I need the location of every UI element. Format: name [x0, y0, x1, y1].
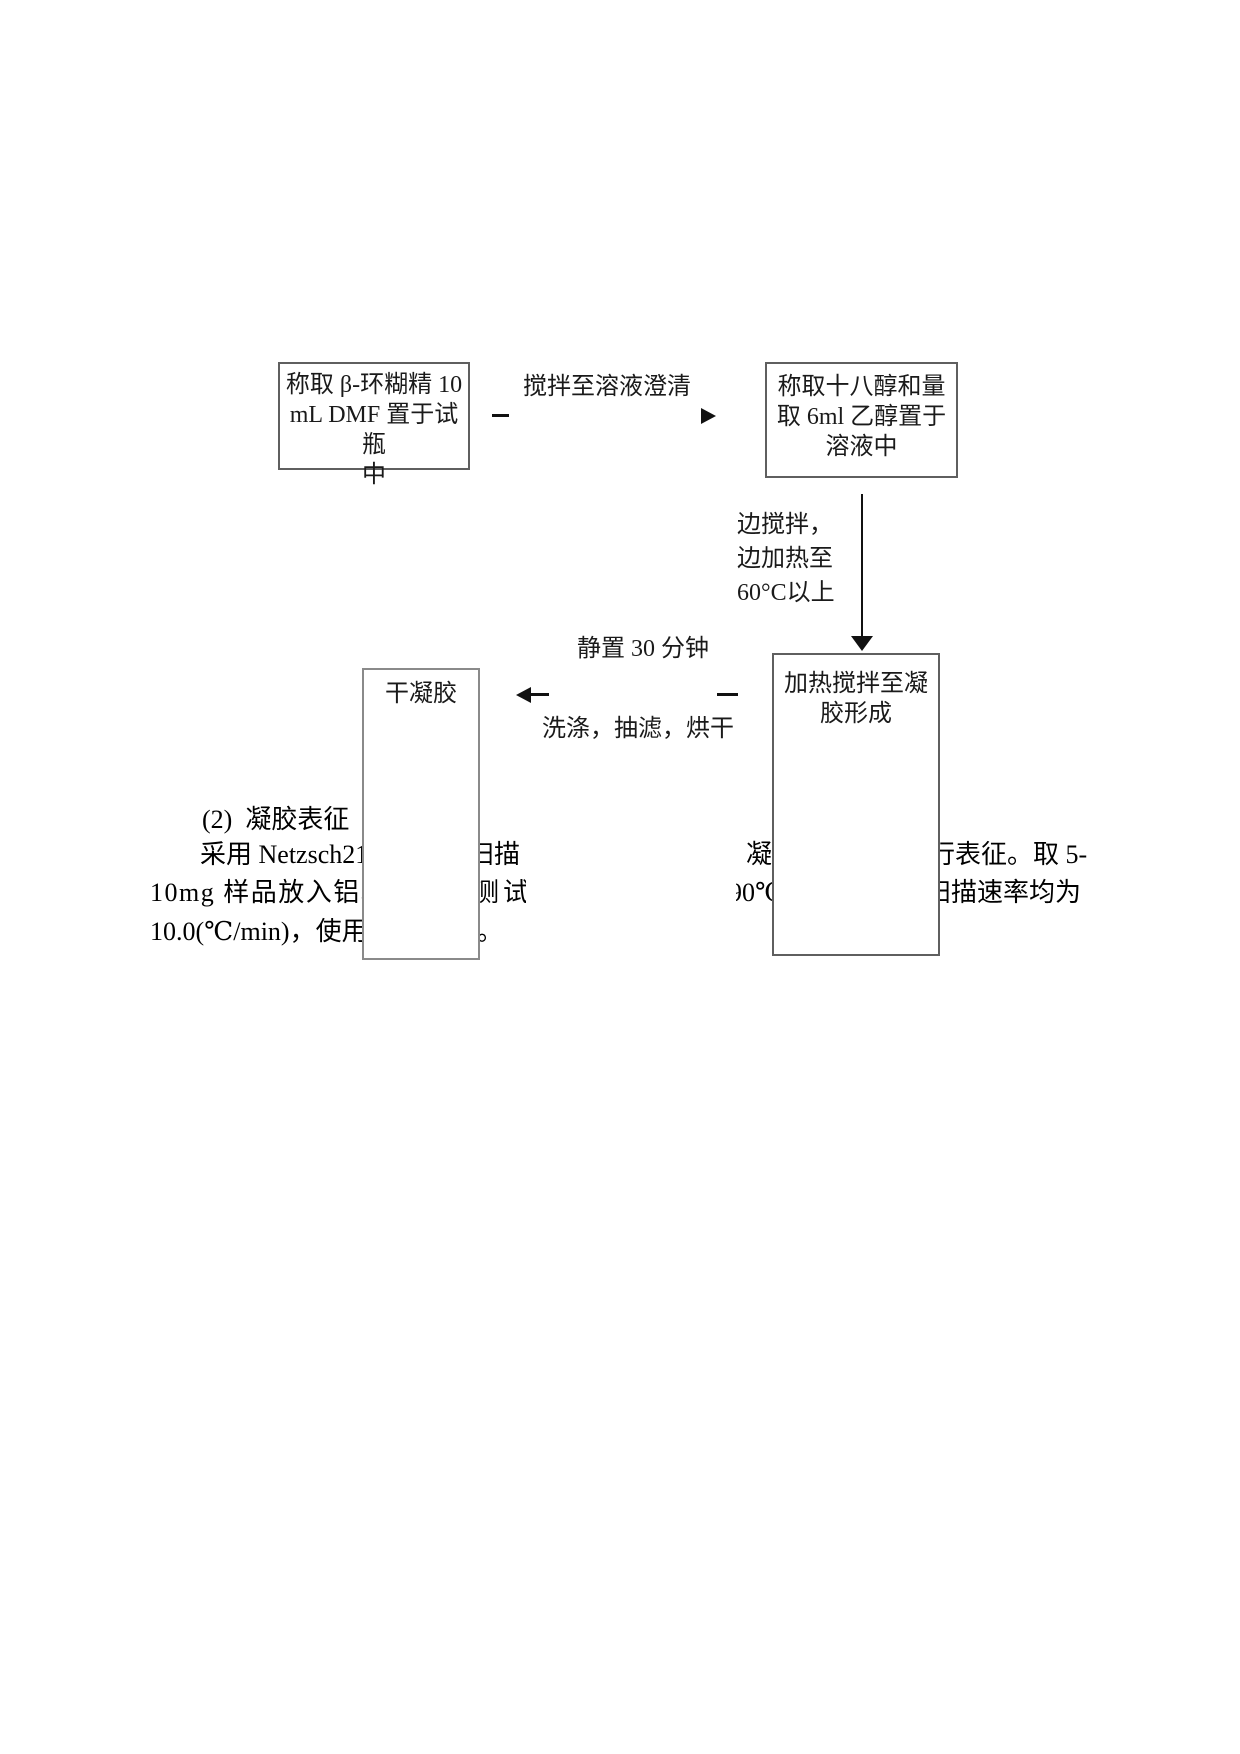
arrow-down-head-icon [851, 636, 873, 651]
flow-box-dry-gel: 干凝胶 [362, 668, 480, 960]
arrow-down-line [861, 494, 863, 638]
arrow-right-head-icon [701, 408, 716, 424]
paragraph-line1-fragment-3: 凝 [746, 840, 772, 870]
arrow-label-heat-while-stirring: 边搅拌， 边加热至 60°C以上 [737, 508, 835, 610]
flow-box-dry-gel-text: 干凝胶 [364, 679, 478, 709]
paragraph-line2-fragment-4: 扫描速率均为 [925, 878, 1081, 908]
arrow-label-rest-30-min: 静置 30 分钟 [577, 632, 709, 666]
document-page: (2) 凝胶表征 采用 Netzsch21 扫描 凝 行表征。取 5- 10mg… [0, 0, 1240, 1754]
flow-box-weigh-cyclodextrin-text: 称取 β-环糊精 10 mL DMF 置于试瓶 中 [280, 370, 468, 490]
arrow-label-stir-until-clear: 搅拌至溶液澄清 [523, 370, 691, 404]
flow-box-weigh-octadecanol: 称取十八醇和量 取 6ml 乙醇置于 溶液中 [765, 362, 958, 478]
arrow-right-dash [492, 414, 509, 417]
paragraph-line2-fragment-1: 10mg 样品放入铝坩 [150, 878, 388, 908]
arrow-label-wash-filter-dry: 洗涤，抽滤，烘干 [542, 712, 734, 746]
arrow-left-dash [717, 693, 738, 696]
paragraph-line2-fragment-2: 测试 [473, 878, 533, 908]
paragraph-line1-fragment-4: 行表征。取 5- [929, 840, 1087, 870]
flow-box-heat-stir-to-gel: 加热搅拌至凝 胶形成 [772, 653, 940, 956]
paragraph-line3-fragment-1: 10.0(℃/min)，使用 [150, 917, 368, 947]
arrow-left-line [531, 693, 549, 696]
flow-box-heat-stir-to-gel-text: 加热搅拌至凝 胶形成 [774, 669, 938, 729]
paragraph-line3-fragment-2: 。 [477, 917, 503, 947]
section-heading: (2) 凝胶表征 [202, 799, 349, 836]
flow-box-weigh-cyclodextrin: 称取 β-环糊精 10 mL DMF 置于试瓶 中 [278, 362, 470, 470]
white-overlay-patch [526, 834, 736, 916]
paragraph-line1-fragment-1: 采用 Netzsch21 [200, 840, 368, 870]
flow-box-weigh-octadecanol-text: 称取十八醇和量 取 6ml 乙醇置于 溶液中 [767, 372, 956, 462]
arrow-left-head-icon [516, 687, 531, 703]
